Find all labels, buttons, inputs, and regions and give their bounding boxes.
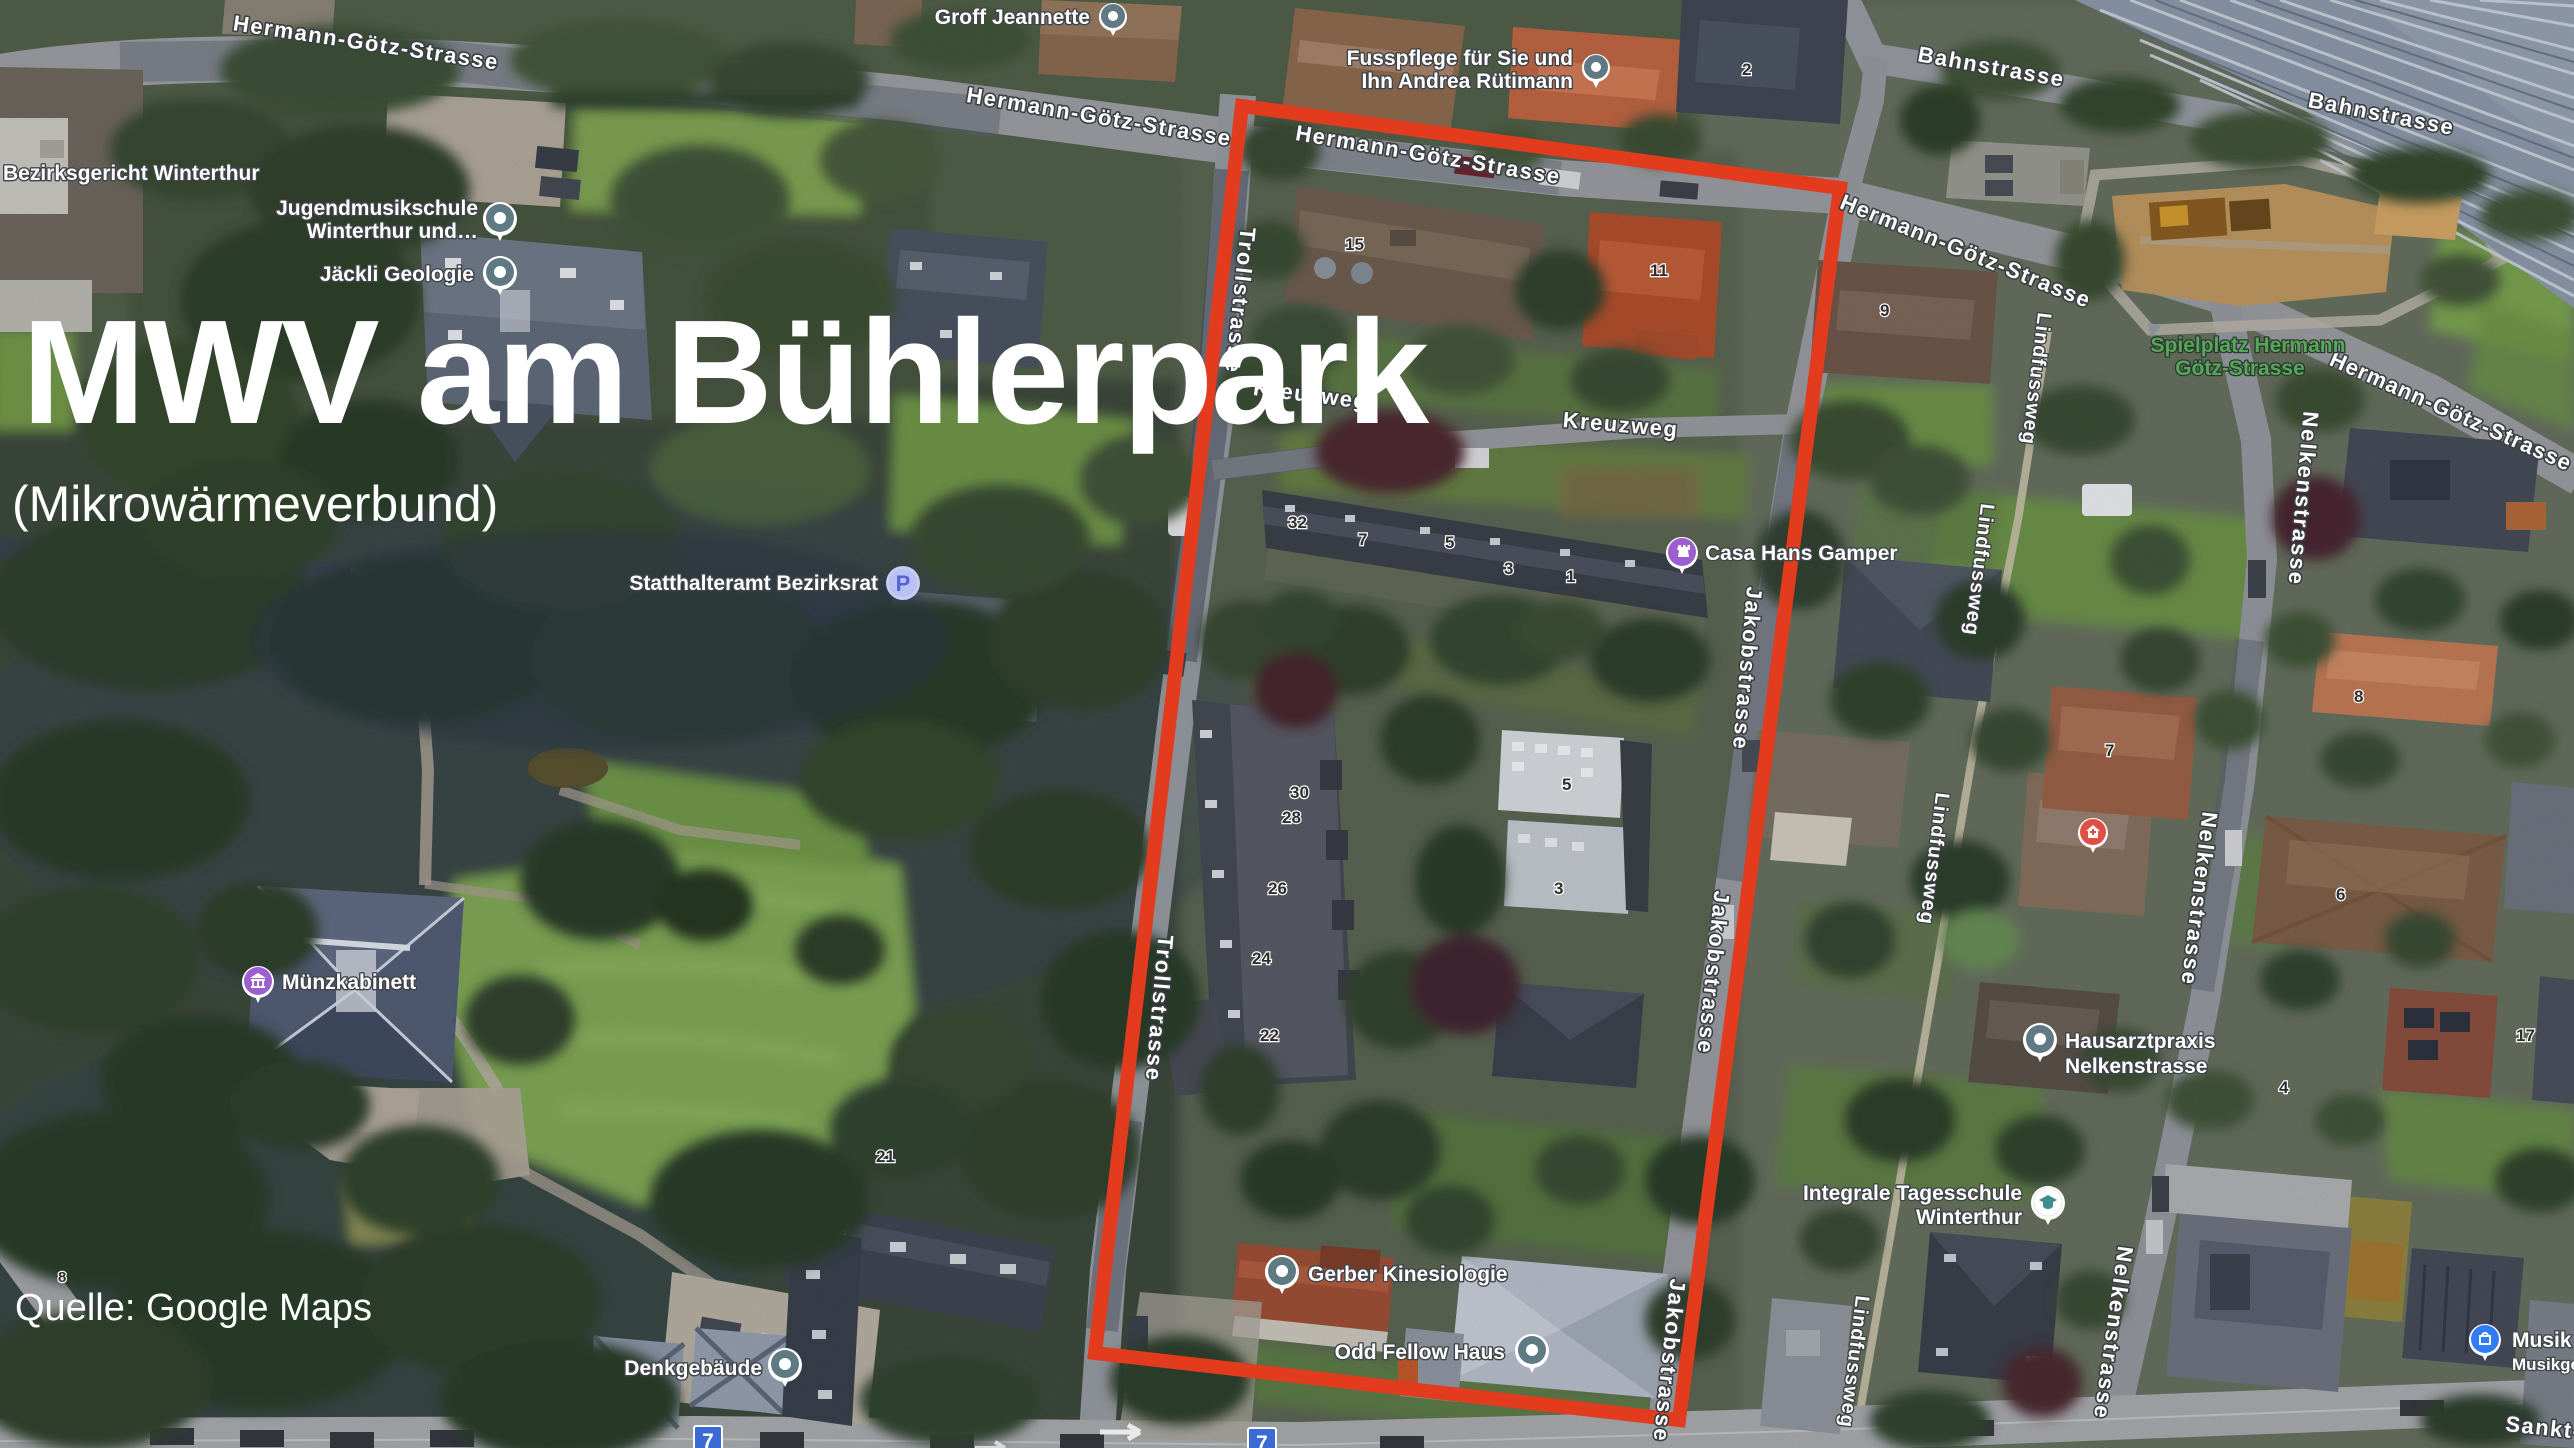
svg-text:Nelkenstrasse: Nelkenstrasse	[2065, 1055, 2207, 1078]
svg-text:Götz-Strasse: Götz-Strasse	[2175, 357, 2305, 380]
svg-text:Winterthur und…: Winterthur und…	[307, 220, 478, 243]
svg-text:Casa Hans Gamper: Casa Hans Gamper	[1705, 542, 1898, 565]
svg-text:3: 3	[1554, 879, 1563, 898]
svg-text:MWV am Bühlerpark: MWV am Bühlerpark	[22, 290, 1430, 455]
svg-text:17: 17	[2516, 1026, 2535, 1045]
svg-text:Quelle: Google Maps: Quelle: Google Maps	[15, 1287, 372, 1329]
svg-text:Münzkabinett: Münzkabinett	[282, 971, 416, 994]
svg-text:Groff Jeannette: Groff Jeannette	[935, 6, 1090, 29]
svg-text:Jugendmusikschule: Jugendmusikschule	[276, 197, 478, 220]
svg-text:P: P	[896, 571, 911, 596]
svg-text:21: 21	[876, 1147, 895, 1166]
svg-text:Hausarztpraxis: Hausarztpraxis	[2065, 1030, 2216, 1053]
svg-text:Statthalteramt Bezirksrat: Statthalteramt Bezirksrat	[629, 572, 878, 595]
svg-text:8: 8	[2354, 687, 2363, 706]
svg-text:(Mikrowärmeverbund): (Mikrowärmeverbund)	[12, 476, 498, 532]
svg-text:4: 4	[2279, 1078, 2289, 1097]
svg-text:Integrale Tagesschule: Integrale Tagesschule	[1803, 1182, 2022, 1205]
svg-text:Musik Sp: Musik Sp	[2512, 1329, 2574, 1352]
svg-text:Jäckli Geologie: Jäckli Geologie	[320, 263, 474, 286]
svg-text:8: 8	[58, 1269, 66, 1286]
svg-text:5: 5	[1445, 533, 1454, 552]
svg-text:15: 15	[1345, 235, 1364, 254]
svg-text:2: 2	[1742, 60, 1751, 79]
svg-text:32: 32	[1288, 513, 1307, 532]
svg-text:30: 30	[1290, 783, 1309, 802]
svg-text:7: 7	[1358, 530, 1367, 549]
svg-text:Musikgesch: Musikgesch	[2512, 1355, 2574, 1374]
svg-text:9: 9	[1880, 301, 1889, 320]
svg-text:Gerber Kinesiologie: Gerber Kinesiologie	[1308, 1263, 1508, 1286]
svg-text:3: 3	[1504, 559, 1513, 578]
svg-text:Ihn Andrea Rütimann: Ihn Andrea Rütimann	[1361, 70, 1573, 93]
svg-text:Winterthur: Winterthur	[1916, 1206, 2022, 1229]
svg-text:26: 26	[1268, 879, 1287, 898]
svg-text:Bezirksgericht Winterthur: Bezirksgericht Winterthur	[3, 162, 260, 185]
svg-text:28: 28	[1282, 808, 1301, 827]
svg-text:5: 5	[1562, 775, 1571, 794]
svg-text:Fusspflege für Sie und: Fusspflege für Sie und	[1347, 47, 1573, 70]
svg-text:24: 24	[1252, 949, 1271, 968]
svg-text:22: 22	[1260, 1026, 1279, 1045]
svg-text:Denkgebäude: Denkgebäude	[624, 1357, 762, 1380]
svg-text:1: 1	[1566, 567, 1575, 586]
svg-text:7: 7	[2105, 741, 2114, 760]
svg-text:7: 7	[1256, 1432, 1268, 1448]
svg-text:7: 7	[702, 1430, 714, 1448]
svg-text:Odd Fellow Haus: Odd Fellow Haus	[1335, 1341, 1505, 1364]
svg-text:11: 11	[1650, 261, 1668, 280]
svg-text:6: 6	[2336, 885, 2345, 904]
svg-text:Spielplatz Hermann: Spielplatz Hermann	[2151, 334, 2346, 357]
